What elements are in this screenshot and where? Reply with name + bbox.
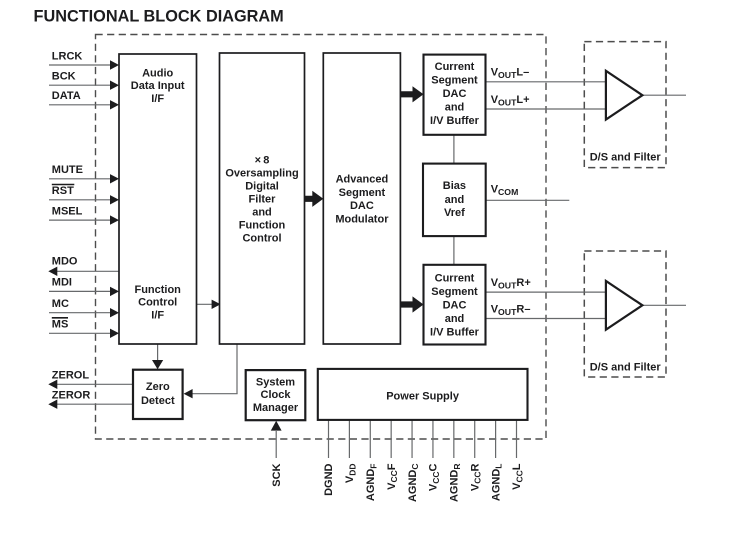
svg-text:Current: Current [435, 273, 475, 285]
svg-text:ZEROR: ZEROR [52, 389, 91, 401]
svg-text:Segment: Segment [431, 286, 478, 298]
svg-text:I/F: I/F [151, 309, 164, 321]
svg-text:Segment: Segment [431, 75, 478, 87]
svg-text:Oversampling: Oversampling [225, 167, 298, 179]
svg-text:Segment: Segment [339, 187, 386, 199]
svg-text:I/V Buffer: I/V Buffer [430, 115, 480, 127]
svg-text:MDO: MDO [52, 256, 78, 268]
svg-text:LRCK: LRCK [52, 50, 83, 62]
svg-text:DAC: DAC [443, 300, 467, 312]
svg-text:Function: Function [239, 219, 286, 231]
svg-text:DAC: DAC [443, 88, 467, 100]
svg-text:RST: RST [52, 185, 74, 197]
svg-text:Filter: Filter [249, 193, 277, 205]
svg-text:DAC: DAC [350, 200, 374, 212]
svg-text:Control: Control [138, 297, 177, 309]
svg-text:FUNCTIONAL BLOCK DIAGRAM: FUNCTIONAL BLOCK DIAGRAM [34, 8, 284, 26]
svg-text:SCK: SCK [271, 463, 283, 486]
svg-text:I/V Buffer: I/V Buffer [430, 327, 480, 339]
svg-text:Current: Current [435, 61, 475, 73]
svg-text:Control: Control [242, 232, 281, 244]
svg-text:Digital: Digital [245, 180, 279, 192]
svg-text:D/S and Filter: D/S and Filter [590, 362, 662, 374]
svg-text:Audio: Audio [142, 67, 173, 79]
svg-text:ZEROL: ZEROL [52, 369, 90, 381]
svg-text:DATA: DATA [52, 90, 81, 102]
svg-text:MC: MC [52, 298, 69, 310]
svg-text:Clock: Clock [261, 389, 292, 401]
svg-text:I/F: I/F [151, 93, 164, 105]
svg-text:AGNDF: AGNDF [365, 464, 378, 502]
svg-text:Function: Function [134, 284, 181, 296]
svg-text:Power Supply: Power Supply [386, 391, 460, 403]
svg-text:MDI: MDI [52, 277, 72, 289]
svg-text:Modulator: Modulator [335, 214, 389, 226]
svg-text:BCK: BCK [52, 71, 76, 83]
svg-text:and: and [445, 194, 465, 206]
svg-text:Manager: Manager [253, 402, 299, 414]
svg-text:and: and [445, 102, 465, 114]
svg-text:MSEL: MSEL [52, 205, 83, 217]
svg-text:× 8: × 8 [255, 154, 270, 166]
svg-text:MUTE: MUTE [52, 164, 83, 176]
svg-text:Data Input: Data Input [131, 80, 185, 92]
svg-text:Advanced: Advanced [336, 173, 389, 185]
svg-text:System: System [256, 376, 295, 388]
svg-text:AGNDL: AGNDL [490, 464, 503, 502]
svg-text:and: and [445, 313, 465, 325]
svg-text:Bias: Bias [443, 180, 466, 192]
svg-text:D/S and Filter: D/S and Filter [590, 152, 662, 164]
svg-text:DGND: DGND [323, 463, 335, 495]
svg-text:and: and [252, 206, 272, 218]
svg-text:Detect: Detect [141, 395, 175, 407]
svg-text:Vref: Vref [444, 207, 465, 219]
svg-text:MS: MS [52, 318, 69, 330]
svg-text:Zero: Zero [146, 381, 170, 393]
